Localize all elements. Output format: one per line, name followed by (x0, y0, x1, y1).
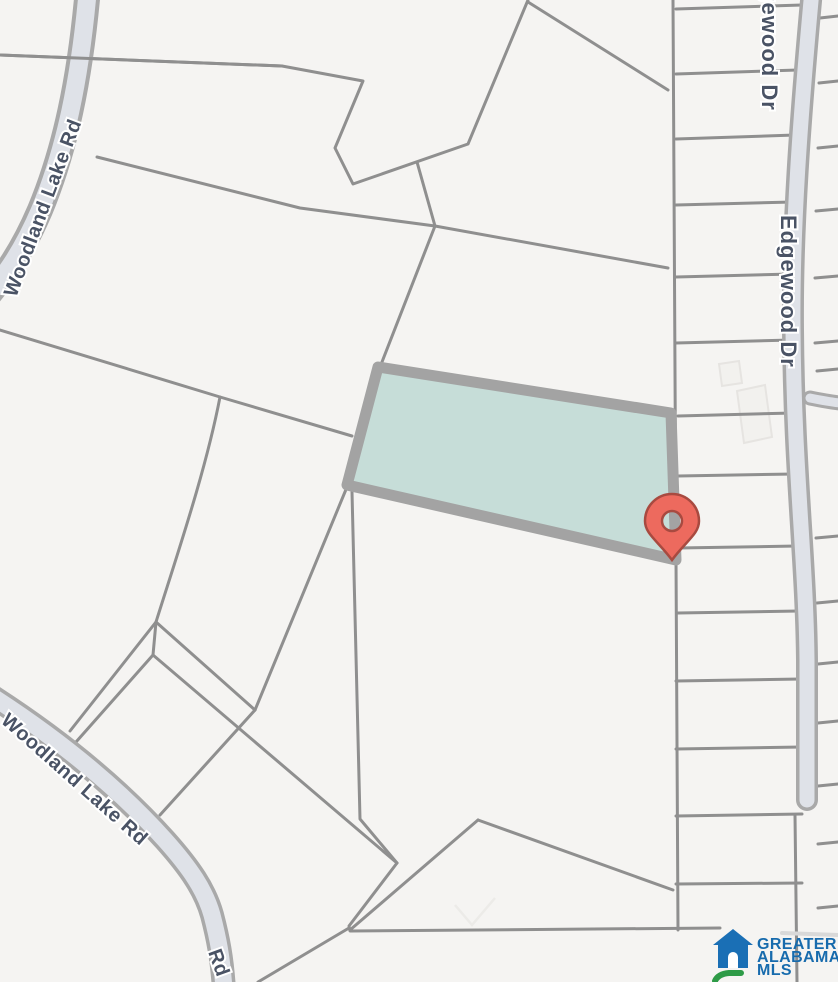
road-label-edgewood-top: Edgewood Dr (757, 0, 782, 111)
house-logo-icon (712, 928, 754, 982)
road-side-stub (810, 398, 838, 403)
mls-logo-text: GREATER ALABAMA MLS (757, 938, 838, 977)
mls-logo: GREATER ALABAMA MLS (712, 928, 838, 982)
map-view[interactable]: Woodland Lake Rd Woodland Lake Rd Rd Edg… (0, 0, 838, 982)
road-label-edgewood-main: Edgewood Dr (776, 215, 801, 368)
map-canvas[interactable]: Woodland Lake Rd Woodland Lake Rd Rd Edg… (0, 0, 838, 982)
